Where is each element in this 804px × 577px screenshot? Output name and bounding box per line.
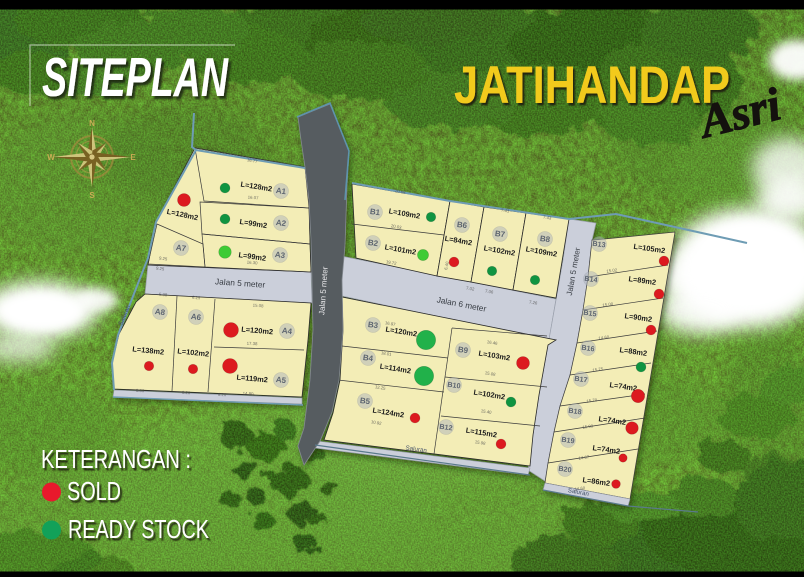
svg-text:5.38: 5.38 [159,292,168,298]
svg-text:B10: B10 [447,380,461,391]
svg-text:SOLD: SOLD [67,476,121,506]
svg-text:8.26: 8.26 [182,390,191,396]
svg-text:A5: A5 [275,375,287,385]
svg-text:B15: B15 [583,308,597,319]
svg-text:B1: B1 [369,207,381,217]
svg-text:14.80: 14.80 [243,391,255,397]
svg-text:A8: A8 [154,307,166,317]
svg-text:E: E [130,153,136,162]
svg-text:A1: A1 [275,186,287,196]
svg-text:B16: B16 [581,343,595,354]
svg-text:8.20: 8.20 [218,392,227,398]
svg-text:B13: B13 [592,239,606,250]
svg-text:S: S [89,191,95,200]
svg-text:B3: B3 [367,320,379,330]
svg-text:A6: A6 [190,312,202,322]
svg-text:A3: A3 [274,250,286,260]
svg-text:B19: B19 [561,435,575,446]
svg-text:B4: B4 [362,353,374,363]
svg-text:B17: B17 [574,374,588,385]
svg-text:B12: B12 [439,422,453,433]
svg-text:A2: A2 [275,218,287,228]
svg-text:B9: B9 [457,345,469,355]
svg-text:JATIHANDAP: JATIHANDAP [454,56,730,115]
svg-text:A4: A4 [281,326,293,336]
svg-text:16.07: 16.07 [248,195,260,201]
svg-text:B14: B14 [584,274,598,285]
svg-text:B20: B20 [558,464,572,475]
svg-text:8.00: 8.00 [136,388,145,394]
svg-text:SITEPLAN: SITEPLAN [42,46,229,108]
svg-text:B6: B6 [456,220,468,230]
svg-text:6.25: 6.25 [192,295,201,301]
svg-text:READY STOCK: READY STOCK [68,514,209,544]
svg-text:16.30: 16.30 [247,260,259,266]
svg-text:17.38: 17.38 [247,341,259,346]
svg-text:N: N [89,119,95,128]
svg-text:B8: B8 [539,234,551,244]
svg-text:B5: B5 [359,396,371,406]
svg-text:KETERANGAN :: KETERANGAN : [41,444,191,474]
svg-text:B18: B18 [568,406,582,417]
svg-text:A7: A7 [175,243,187,253]
svg-text:W: W [47,153,55,162]
svg-text:B2: B2 [367,238,379,248]
svg-text:15.08: 15.08 [253,303,265,309]
svg-text:B7: B7 [494,229,506,239]
